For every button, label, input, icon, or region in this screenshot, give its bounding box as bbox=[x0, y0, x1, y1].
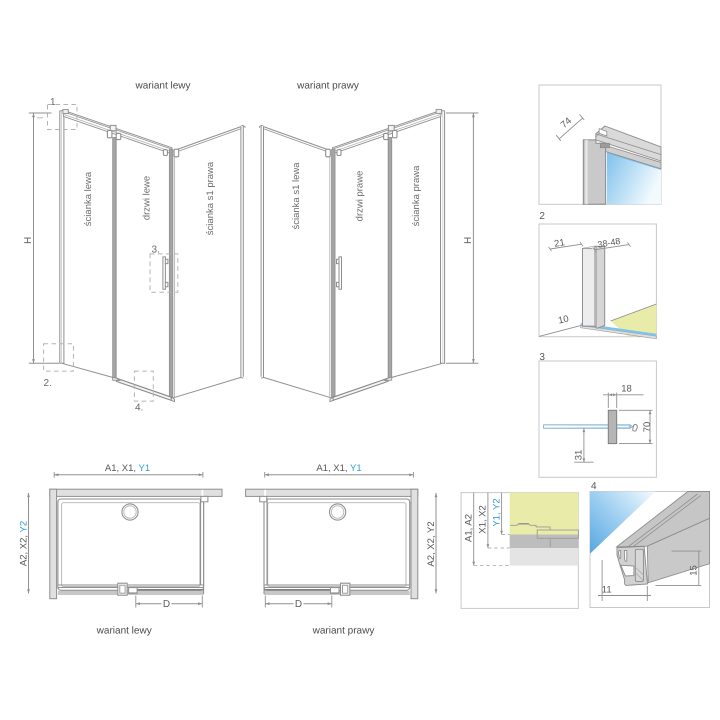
svg-text:A1, A2: A1, A2 bbox=[464, 514, 475, 542]
svg-text:1.: 1. bbox=[50, 97, 58, 108]
svg-text:18: 18 bbox=[621, 384, 632, 395]
svg-text:wariant prawy: wariant prawy bbox=[312, 626, 375, 637]
svg-text:10: 10 bbox=[557, 314, 570, 327]
svg-text:X1, X2: X1, X2 bbox=[478, 505, 489, 534]
svg-text:H: H bbox=[23, 237, 34, 244]
svg-text:drzwi prawe: drzwi prawe bbox=[355, 171, 366, 222]
svg-text:wariant lewy: wariant lewy bbox=[96, 626, 152, 637]
svg-text:wariant prawy: wariant prawy bbox=[296, 81, 359, 92]
svg-text:wariant lewy: wariant lewy bbox=[134, 81, 190, 92]
svg-text:A1, X1, Y1: A1, X1, Y1 bbox=[316, 463, 361, 474]
svg-text:ścianka prawa: ścianka prawa bbox=[411, 165, 422, 226]
svg-text:D: D bbox=[163, 599, 170, 610]
svg-text:H: H bbox=[463, 237, 474, 244]
svg-text:A2, X2, Y2: A2, X2, Y2 bbox=[426, 521, 437, 566]
svg-text:ścianka s1 prawa: ścianka s1 prawa bbox=[205, 161, 216, 235]
svg-text:Y1, Y2: Y1, Y2 bbox=[491, 498, 502, 526]
svg-text:2: 2 bbox=[539, 211, 545, 222]
svg-text:ścianka lewa: ścianka lewa bbox=[83, 171, 94, 226]
svg-text:A2, X2, Y2: A2, X2, Y2 bbox=[18, 521, 29, 566]
svg-text:15: 15 bbox=[688, 565, 699, 576]
svg-text:11: 11 bbox=[602, 584, 612, 595]
svg-text:A1, X1, Y1: A1, X1, Y1 bbox=[105, 463, 150, 474]
svg-text:ścianka s1 lewa: ścianka s1 lewa bbox=[291, 162, 302, 230]
svg-text:31: 31 bbox=[574, 450, 585, 461]
svg-text:D: D bbox=[295, 599, 302, 610]
svg-text:21: 21 bbox=[553, 237, 565, 250]
svg-text:4.: 4. bbox=[135, 403, 143, 414]
svg-text:drzwi lewe: drzwi lewe bbox=[142, 176, 153, 220]
svg-text:2.: 2. bbox=[44, 378, 52, 389]
svg-text:70: 70 bbox=[642, 422, 653, 433]
svg-text:4: 4 bbox=[591, 481, 597, 492]
